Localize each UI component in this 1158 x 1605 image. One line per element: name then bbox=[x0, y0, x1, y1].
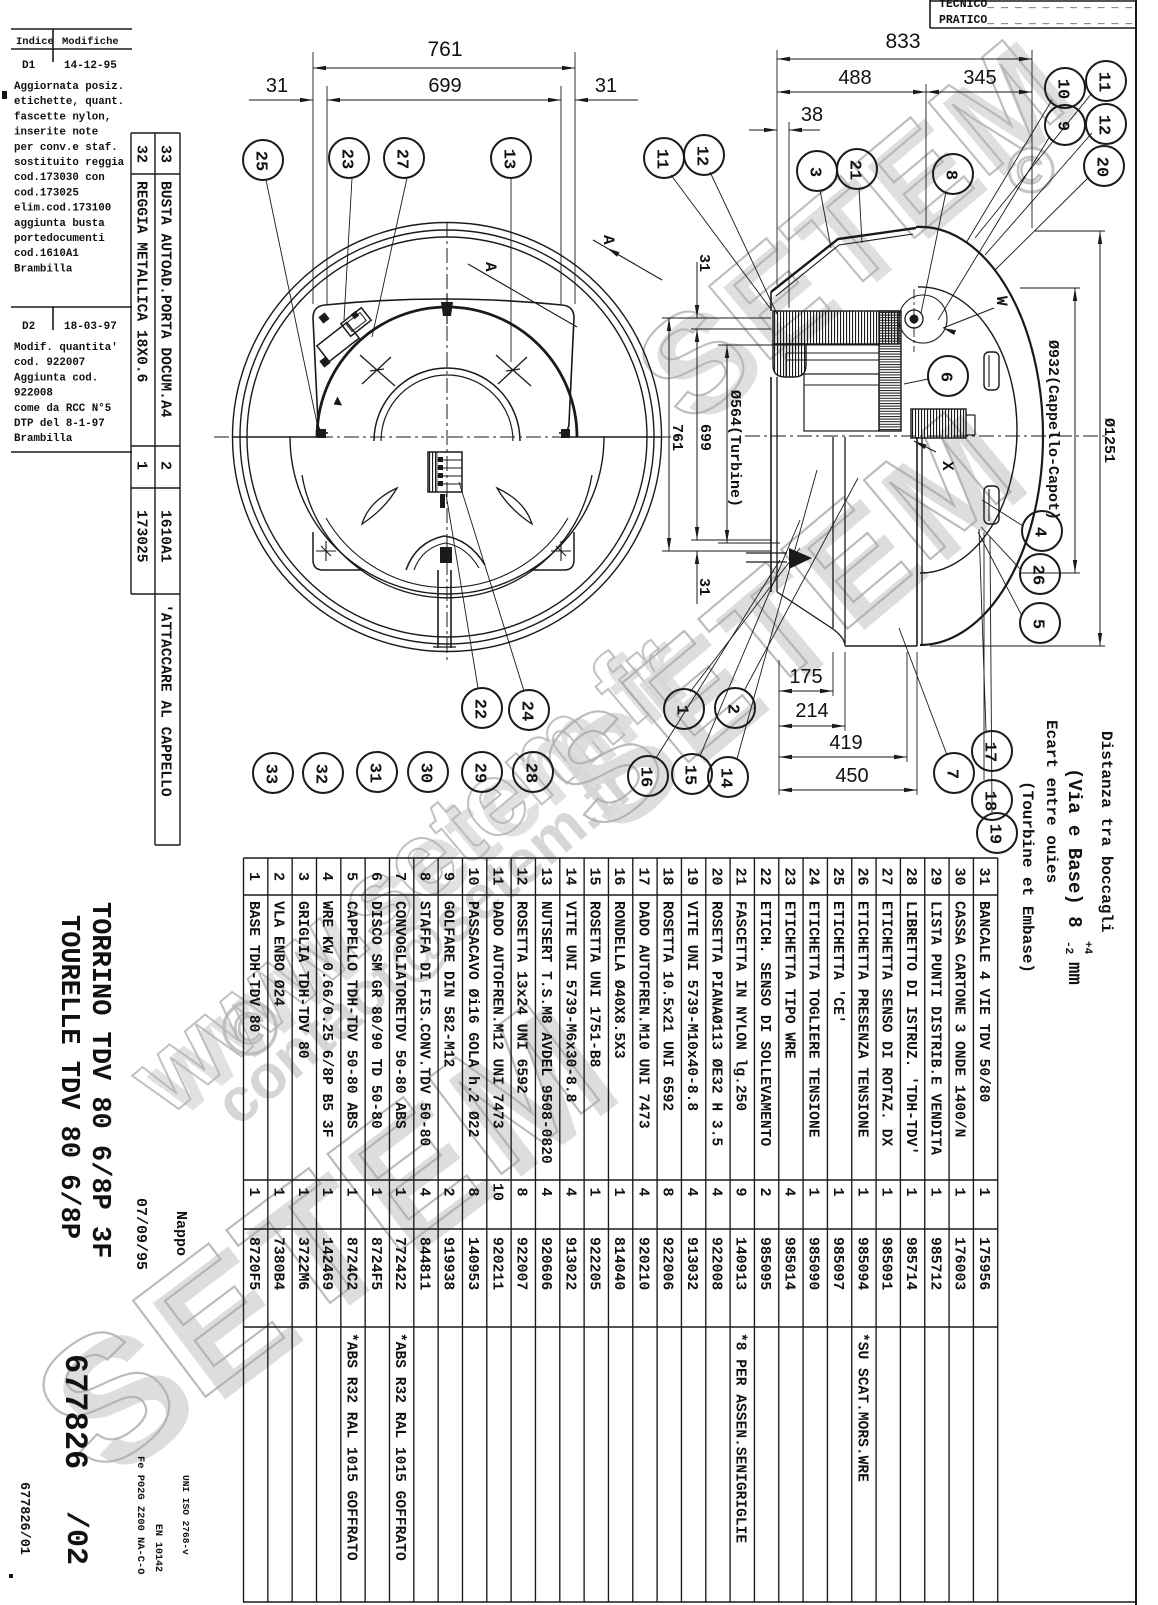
svg-text:cod.1610A1: cod.1610A1 bbox=[14, 248, 79, 260]
svg-text:ETICHETTA TIPO WRE: ETICHETTA TIPO WRE bbox=[780, 901, 796, 1059]
svg-text:31: 31 bbox=[266, 75, 288, 97]
svg-text:17: 17 bbox=[634, 868, 651, 886]
svg-text:NUTSERT T.S.M8 AVDEL 9508-0820: NUTSERT T.S.M8 AVDEL 9508-0820 bbox=[537, 901, 553, 1164]
svg-text:(Tourbine et Embase): (Tourbine et Embase) bbox=[1018, 781, 1036, 973]
svg-text:4: 4 bbox=[780, 1188, 797, 1197]
svg-text:per conv.e staf.: per conv.e staf. bbox=[14, 142, 118, 154]
svg-text:UNI ISO 2768-v: UNI ISO 2768-v bbox=[180, 1475, 191, 1555]
svg-text:9: 9 bbox=[440, 872, 457, 881]
svg-text:7380B4: 7380B4 bbox=[269, 1237, 285, 1290]
svg-text:33: 33 bbox=[261, 764, 280, 784]
svg-text:2: 2 bbox=[440, 1188, 457, 1197]
svg-text:1: 1 bbox=[245, 872, 262, 881]
svg-text:140953: 140953 bbox=[464, 1237, 480, 1290]
svg-text:3: 3 bbox=[294, 872, 311, 881]
svg-text:31: 31 bbox=[595, 75, 617, 97]
svg-text:920211: 920211 bbox=[488, 1237, 504, 1290]
svg-text:8724C2: 8724C2 bbox=[342, 1237, 358, 1290]
svg-text:32: 32 bbox=[311, 764, 330, 784]
svg-text:cod. 922007: cod. 922007 bbox=[14, 357, 85, 369]
svg-text:BANCALE 4 VIE TDV 50/80: BANCALE 4 VIE TDV 50/80 bbox=[975, 901, 991, 1102]
svg-text:BASE TDH-TDV 80: BASE TDH-TDV 80 bbox=[245, 901, 261, 1032]
svg-text:CONVOGLIATORETDV 50-80 ABS: CONVOGLIATORETDV 50-80 ABS bbox=[391, 901, 407, 1129]
svg-text:23: 23 bbox=[337, 149, 356, 169]
svg-text:142469: 142469 bbox=[318, 1237, 334, 1290]
svg-text:W: W bbox=[992, 296, 1010, 306]
svg-text:419: 419 bbox=[829, 732, 862, 754]
svg-text:elim.cod.173100: elim.cod.173100 bbox=[14, 203, 111, 215]
svg-text:31: 31 bbox=[975, 868, 992, 886]
svg-text:Modifiche: Modifiche bbox=[62, 36, 119, 48]
svg-text:*SU SCAT.MORS.WRE: *SU SCAT.MORS.WRE bbox=[853, 1333, 869, 1482]
svg-text:922205: 922205 bbox=[586, 1237, 602, 1290]
svg-text:TECNICO_ _ _ _ _ _ _ _ _ _ _: TECNICO_ _ _ _ _ _ _ _ _ _ _ bbox=[939, 0, 1132, 11]
svg-text:(Via e Base) 8: (Via e Base) 8 bbox=[1063, 768, 1085, 928]
svg-text:cod.173030 con: cod.173030 con bbox=[14, 172, 105, 184]
svg-text:26: 26 bbox=[853, 868, 870, 886]
svg-text:DADO AUTOFREN.M10 UNI 7473: DADO AUTOFREN.M10 UNI 7473 bbox=[634, 901, 650, 1129]
svg-text:1: 1 bbox=[902, 1188, 919, 1197]
svg-text:15: 15 bbox=[680, 765, 699, 785]
svg-text:16: 16 bbox=[610, 868, 627, 886]
svg-text:25: 25 bbox=[251, 151, 270, 171]
svg-text:18: 18 bbox=[980, 791, 999, 811]
svg-text:2: 2 bbox=[157, 461, 174, 470]
svg-text:PRATICO_ _ _ _ _ _ _ _ _ _ _: PRATICO_ _ _ _ _ _ _ _ _ _ _ bbox=[939, 14, 1132, 27]
svg-text:*8 PER ASSEN.SENIGRIGLIE: *8 PER ASSEN.SENIGRIGLIE bbox=[732, 1333, 748, 1543]
svg-text:12: 12 bbox=[1094, 115, 1113, 135]
svg-text:Fe P02G Z200 NA-C-O: Fe P02G Z200 NA-C-O bbox=[134, 1456, 146, 1574]
svg-text:4: 4 bbox=[1030, 527, 1049, 537]
svg-text:3722M6: 3722M6 bbox=[294, 1237, 310, 1290]
svg-text:ETICHETTA 'CE': ETICHETTA 'CE' bbox=[829, 901, 845, 1024]
svg-text:833: 833 bbox=[885, 30, 920, 53]
svg-text:mm: mm bbox=[1063, 962, 1085, 985]
svg-text:1: 1 bbox=[586, 1188, 603, 1197]
svg-text:22: 22 bbox=[756, 868, 773, 886]
svg-text:9: 9 bbox=[732, 1188, 749, 1197]
svg-text:5: 5 bbox=[1028, 619, 1047, 629]
svg-text:8: 8 bbox=[941, 170, 960, 180]
svg-text:31: 31 bbox=[695, 254, 712, 272]
svg-text:7: 7 bbox=[391, 872, 408, 881]
svg-text:1: 1 bbox=[610, 1188, 627, 1197]
svg-text:Distanza tra boccagli: Distanza tra boccagli bbox=[1097, 731, 1115, 933]
svg-text:1: 1 bbox=[133, 461, 150, 470]
svg-text:985714: 985714 bbox=[902, 1237, 918, 1290]
svg-text:Brambilla: Brambilla bbox=[14, 263, 73, 275]
svg-text:21: 21 bbox=[732, 868, 749, 886]
svg-text:23: 23 bbox=[780, 868, 797, 886]
svg-text:12: 12 bbox=[692, 146, 711, 166]
svg-text:GRIGLIA TDH-TDV 80: GRIGLIA TDH-TDV 80 bbox=[294, 901, 310, 1059]
svg-text:140913: 140913 bbox=[732, 1237, 748, 1290]
svg-text:GOLFARE DIN 582-M12: GOLFARE DIN 582-M12 bbox=[440, 901, 456, 1067]
svg-text:CAPPELLO TDH-TDV 50-80 ABS: CAPPELLO TDH-TDV 50-80 ABS bbox=[342, 901, 358, 1129]
svg-text:985094: 985094 bbox=[853, 1237, 869, 1290]
svg-text:699: 699 bbox=[428, 75, 461, 97]
svg-text:1: 1 bbox=[951, 1188, 968, 1197]
svg-text:4: 4 bbox=[561, 1188, 578, 1197]
svg-text:Ecart entre ouies: Ecart entre ouies bbox=[1042, 720, 1060, 883]
svg-text:2: 2 bbox=[723, 704, 742, 714]
svg-text:19: 19 bbox=[985, 824, 1004, 844]
svg-text:Ø1251: Ø1251 bbox=[1100, 418, 1117, 463]
svg-text:4: 4 bbox=[415, 1188, 432, 1197]
svg-text:922008: 922008 bbox=[14, 388, 53, 400]
svg-text:31: 31 bbox=[695, 578, 712, 596]
svg-text:1: 1 bbox=[853, 1188, 870, 1197]
svg-text:1: 1 bbox=[391, 1188, 408, 1197]
svg-text:677826: 677826 bbox=[56, 1354, 93, 1469]
svg-text:'ATTACCARE AL CAPPELLO: 'ATTACCARE AL CAPPELLO bbox=[157, 604, 173, 797]
svg-text:18-03-97: 18-03-97 bbox=[64, 321, 117, 333]
svg-text:11: 11 bbox=[1094, 72, 1113, 92]
svg-text:D2: D2 bbox=[22, 321, 35, 333]
svg-text:6: 6 bbox=[367, 872, 384, 881]
svg-text:17: 17 bbox=[980, 742, 999, 762]
svg-text:8: 8 bbox=[513, 1188, 530, 1197]
svg-text:13: 13 bbox=[499, 149, 518, 169]
svg-text:A: A bbox=[599, 235, 617, 245]
svg-text:*ABS R32 RAL 1015 GOFFRATO: *ABS R32 RAL 1015 GOFFRATO bbox=[342, 1333, 358, 1561]
svg-text:985090: 985090 bbox=[805, 1237, 821, 1290]
svg-text:26: 26 bbox=[1028, 565, 1047, 585]
svg-text:18: 18 bbox=[659, 868, 676, 886]
svg-text:10: 10 bbox=[1053, 79, 1072, 99]
svg-text:REGGIA METALLICA 18X0.6: REGGIA METALLICA 18X0.6 bbox=[133, 181, 149, 382]
svg-text:STAFFA DI FIS.CONV.TDV 50-80: STAFFA DI FIS.CONV.TDV 50-80 bbox=[415, 901, 431, 1146]
svg-text:2: 2 bbox=[756, 1188, 773, 1197]
svg-text:20: 20 bbox=[707, 868, 724, 886]
svg-text:677826/01: 677826/01 bbox=[16, 1482, 31, 1555]
svg-text:761: 761 bbox=[427, 38, 462, 61]
svg-text:cod.173025: cod.173025 bbox=[14, 187, 79, 199]
svg-text:1: 1 bbox=[342, 1188, 359, 1197]
svg-text:DTP del 8-1-97: DTP del 8-1-97 bbox=[14, 418, 105, 430]
svg-text:07/09/95: 07/09/95 bbox=[132, 1198, 149, 1270]
svg-text:772422: 772422 bbox=[391, 1237, 407, 1290]
svg-text:920606: 920606 bbox=[537, 1237, 553, 1290]
svg-text:22: 22 bbox=[470, 699, 489, 719]
svg-text:ROSETTA 10.5x21 UNI 6592: ROSETTA 10.5x21 UNI 6592 bbox=[659, 901, 675, 1111]
svg-text:173025: 173025 bbox=[133, 510, 149, 563]
svg-text:345: 345 bbox=[963, 67, 996, 89]
svg-text:portedocumenti: portedocumenti bbox=[14, 233, 105, 245]
svg-text:920210: 920210 bbox=[634, 1237, 650, 1290]
svg-text:31: 31 bbox=[365, 763, 384, 783]
svg-text:11: 11 bbox=[652, 149, 671, 169]
svg-text:28: 28 bbox=[902, 868, 919, 886]
svg-text:Ø932(Cappello-Capot): Ø932(Cappello-Capot) bbox=[1044, 340, 1061, 520]
svg-text:10: 10 bbox=[464, 868, 481, 886]
svg-text:Aggiornata posiz.: Aggiornata posiz. bbox=[14, 81, 124, 93]
svg-text:844811: 844811 bbox=[415, 1237, 431, 1290]
svg-text:30: 30 bbox=[416, 763, 435, 783]
svg-text:LIBRETTO DI ISTRUZ. 'TDH-TDV': LIBRETTO DI ISTRUZ. 'TDH-TDV' bbox=[902, 901, 918, 1155]
svg-text:761: 761 bbox=[668, 424, 685, 451]
svg-text:Indice: Indice bbox=[16, 36, 54, 48]
svg-text:1: 1 bbox=[269, 1188, 286, 1197]
svg-text:922007: 922007 bbox=[513, 1237, 529, 1290]
svg-text:ETICHETTA PRESENZA TENSIONE: ETICHETTA PRESENZA TENSIONE bbox=[853, 901, 869, 1138]
svg-text:4: 4 bbox=[707, 1188, 724, 1197]
svg-text:WRE KW 0.66/0.25 6/8P B5 3F: WRE KW 0.66/0.25 6/8P B5 3F bbox=[318, 901, 334, 1137]
svg-text:Modif. quantita': Modif. quantita' bbox=[14, 342, 118, 354]
svg-text:aggiunta busta: aggiunta busta bbox=[14, 218, 105, 230]
svg-text:Ø564(Turbine): Ø564(Turbine) bbox=[726, 390, 743, 507]
svg-text:14: 14 bbox=[561, 868, 578, 886]
svg-text:ETICHETTA TOGLIERE TENSIONE: ETICHETTA TOGLIERE TENSIONE bbox=[805, 901, 821, 1138]
svg-text:inserite note: inserite note bbox=[14, 127, 98, 139]
svg-text:30: 30 bbox=[951, 868, 968, 886]
svg-text:CASSA CARTONE 3 ONDE 1400/N: CASSA CARTONE 3 ONDE 1400/N bbox=[951, 901, 967, 1137]
svg-text:24: 24 bbox=[805, 868, 822, 886]
svg-text:985097: 985097 bbox=[829, 1237, 845, 1290]
svg-text:8720F5: 8720F5 bbox=[245, 1237, 261, 1290]
svg-text:BUSTA AUTOAD.PORTA DOCUM.A4: BUSTA AUTOAD.PORTA DOCUM.A4 bbox=[157, 181, 173, 418]
svg-text:32: 32 bbox=[133, 145, 150, 163]
svg-text:4: 4 bbox=[318, 872, 335, 881]
svg-text:699: 699 bbox=[696, 424, 713, 451]
svg-text:1: 1 bbox=[318, 1188, 335, 1197]
svg-text:ROSETTA UNI 1751-B8: ROSETTA UNI 1751-B8 bbox=[586, 901, 602, 1067]
svg-text:175: 175 bbox=[789, 666, 822, 688]
svg-text:8: 8 bbox=[659, 1188, 676, 1197]
svg-text:985712: 985712 bbox=[926, 1237, 942, 1290]
svg-text:922006: 922006 bbox=[659, 1237, 675, 1290]
svg-text:D1: D1 bbox=[22, 60, 36, 72]
svg-text:/02: /02 bbox=[58, 1511, 92, 1565]
svg-text:12: 12 bbox=[513, 868, 530, 886]
svg-text:VLA ENBO Ø24: VLA ENBO Ø24 bbox=[269, 901, 285, 1006]
svg-text:20: 20 bbox=[1092, 157, 1111, 177]
svg-text:TOURELLE TDV 80 6/8P: TOURELLE TDV 80 6/8P bbox=[53, 915, 83, 1239]
svg-text:fascette nylon,: fascette nylon, bbox=[14, 111, 111, 123]
svg-text:come da RCC N°5: come da RCC N°5 bbox=[14, 403, 111, 415]
svg-text:1: 1 bbox=[926, 1188, 943, 1197]
svg-text:7: 7 bbox=[942, 769, 961, 779]
svg-text:814040: 814040 bbox=[610, 1237, 626, 1290]
svg-text:10: 10 bbox=[488, 1183, 505, 1201]
svg-text:8: 8 bbox=[415, 872, 432, 881]
svg-text:Nappo: Nappo bbox=[172, 1211, 189, 1256]
svg-text:1: 1 bbox=[805, 1188, 822, 1197]
svg-text:27: 27 bbox=[878, 868, 895, 886]
svg-text:DADO AUTOFREN.M12 UNI 7473: DADO AUTOFREN.M12 UNI 7473 bbox=[488, 901, 504, 1129]
svg-text:ETICH. SENSO DI SOLLEVAMENTO: ETICH. SENSO DI SOLLEVAMENTO bbox=[756, 901, 772, 1146]
svg-text:VITE UNI 5739-M10x40-8.8: VITE UNI 5739-M10x40-8.8 bbox=[683, 901, 699, 1111]
svg-text:EN 10142: EN 10142 bbox=[152, 1524, 163, 1572]
svg-text:6: 6 bbox=[936, 372, 955, 382]
svg-text:LISTA PUNTI DISTRIB.E VENDITA: LISTA PUNTI DISTRIB.E VENDITA bbox=[926, 901, 942, 1155]
svg-text:1: 1 bbox=[829, 1188, 846, 1197]
svg-text:11: 11 bbox=[488, 868, 505, 886]
svg-text:3: 3 bbox=[805, 167, 824, 177]
svg-text:913022: 913022 bbox=[561, 1237, 577, 1290]
svg-text:5: 5 bbox=[342, 872, 359, 881]
svg-text:28: 28 bbox=[521, 763, 540, 783]
svg-text:X: X bbox=[938, 461, 956, 471]
svg-text:214: 214 bbox=[795, 700, 828, 722]
svg-text:14-12-95: 14-12-95 bbox=[64, 60, 117, 72]
svg-text:33: 33 bbox=[157, 145, 174, 163]
svg-text:21: 21 bbox=[845, 160, 864, 180]
svg-text:1: 1 bbox=[672, 705, 691, 715]
svg-text:RONDELLA Ø40X8.5X3: RONDELLA Ø40X8.5X3 bbox=[610, 901, 626, 1059]
svg-text:FASCETTA IN NYLON lg.250: FASCETTA IN NYLON lg.250 bbox=[732, 901, 748, 1111]
svg-text:-2: -2 bbox=[1062, 941, 1074, 954]
svg-text:8724F5: 8724F5 bbox=[367, 1237, 383, 1290]
svg-text:19: 19 bbox=[683, 868, 700, 886]
svg-text:Brambilla: Brambilla bbox=[14, 433, 73, 445]
svg-text:8: 8 bbox=[464, 1188, 481, 1197]
svg-text:450: 450 bbox=[835, 765, 868, 787]
svg-text:176003: 176003 bbox=[951, 1237, 967, 1290]
svg-text:A: A bbox=[481, 262, 499, 272]
svg-text:ROSETTA PIANAØ113 ØE32 H 3.5: ROSETTA PIANAØ113 ØE32 H 3.5 bbox=[707, 901, 723, 1146]
svg-text:2: 2 bbox=[269, 872, 286, 881]
svg-text:*ABS R32 RAL 1015 GOFFRATO: *ABS R32 RAL 1015 GOFFRATO bbox=[391, 1333, 407, 1561]
svg-text:488: 488 bbox=[838, 67, 871, 89]
svg-text:ROSETTA 13x24 UNI 6592: ROSETTA 13x24 UNI 6592 bbox=[513, 901, 529, 1094]
svg-text:919938: 919938 bbox=[440, 1237, 456, 1290]
svg-text:922008: 922008 bbox=[707, 1237, 723, 1290]
svg-text:24: 24 bbox=[517, 701, 536, 721]
svg-text:DISCO SM GR 80/90 TD 50-80: DISCO SM GR 80/90 TD 50-80 bbox=[367, 901, 383, 1129]
svg-text:16: 16 bbox=[636, 767, 655, 787]
svg-text:13: 13 bbox=[537, 868, 554, 886]
svg-text:Aggiunta cod.: Aggiunta cod. bbox=[14, 372, 98, 384]
svg-text:985095: 985095 bbox=[756, 1237, 772, 1290]
svg-text:+4: +4 bbox=[1081, 941, 1093, 955]
svg-text:29: 29 bbox=[926, 868, 943, 886]
svg-text:1610A1: 1610A1 bbox=[157, 510, 173, 563]
svg-text:913032: 913032 bbox=[683, 1237, 699, 1290]
svg-text:1: 1 bbox=[975, 1188, 992, 1197]
svg-text:1: 1 bbox=[367, 1188, 384, 1197]
svg-text:38: 38 bbox=[801, 104, 823, 126]
svg-text:1: 1 bbox=[245, 1188, 262, 1197]
svg-text:985091: 985091 bbox=[878, 1237, 894, 1290]
svg-text:15: 15 bbox=[586, 868, 603, 886]
svg-text:VITE UNI 5739-M6x30-8.8: VITE UNI 5739-M6x30-8.8 bbox=[561, 901, 577, 1102]
svg-text:4: 4 bbox=[683, 1188, 700, 1197]
svg-text:etichette, quant.: etichette, quant. bbox=[14, 96, 124, 108]
svg-text:4: 4 bbox=[634, 1188, 651, 1197]
svg-text:175956: 175956 bbox=[975, 1237, 991, 1290]
svg-text:PASSACAVO Øi16 GOLA h.2 Ø22: PASSACAVO Øi16 GOLA h.2 Ø22 bbox=[464, 901, 480, 1137]
svg-text:TORRINO TDV 80 6/8P 3F: TORRINO TDV 80 6/8P 3F bbox=[84, 902, 114, 1258]
svg-text:29: 29 bbox=[470, 763, 489, 783]
svg-text:4: 4 bbox=[537, 1188, 554, 1197]
svg-text:985014: 985014 bbox=[780, 1237, 796, 1290]
svg-text:25: 25 bbox=[829, 868, 846, 886]
svg-text:27: 27 bbox=[392, 149, 411, 169]
svg-text:sostituito reggia: sostituito reggia bbox=[14, 157, 125, 169]
svg-text:1: 1 bbox=[294, 1188, 311, 1197]
svg-text:ETICHETTA SENSO DI ROTAZ. DX: ETICHETTA SENSO DI ROTAZ. DX bbox=[878, 901, 894, 1146]
svg-text:14: 14 bbox=[716, 768, 735, 788]
svg-text:1: 1 bbox=[878, 1188, 895, 1197]
